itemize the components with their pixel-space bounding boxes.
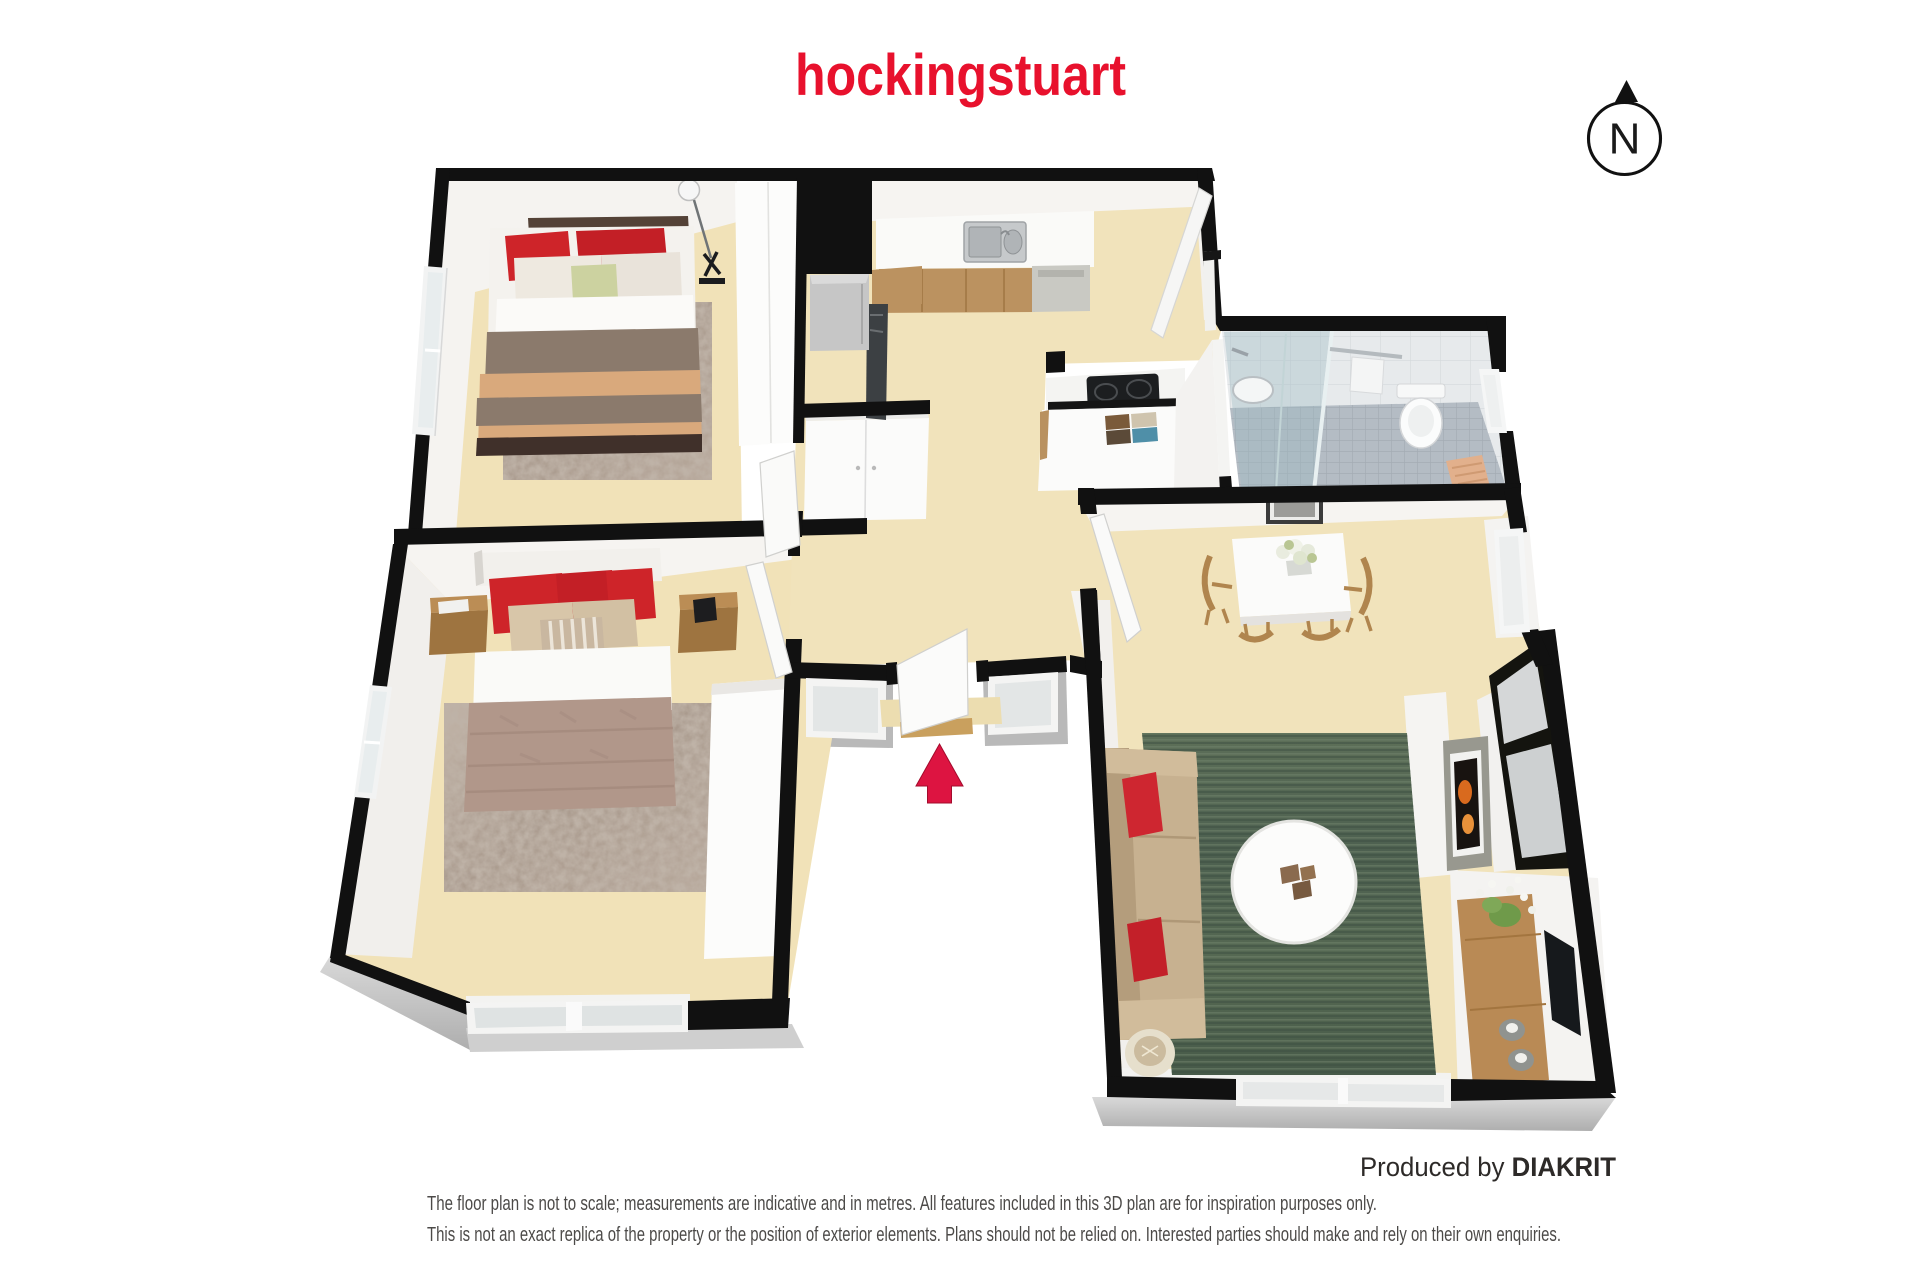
svg-text:hockingstuart: hockingstuart bbox=[795, 43, 1126, 108]
svg-text:This is not an exact replica o: This is not an exact replica of the prop… bbox=[427, 1223, 1561, 1246]
svg-text:Produced by DIAKRIT: Produced by DIAKRIT bbox=[1360, 1152, 1616, 1182]
svg-text:N: N bbox=[1609, 115, 1641, 164]
svg-text:The floor plan is not to scale: The floor plan is not to scale; measurem… bbox=[427, 1192, 1377, 1215]
